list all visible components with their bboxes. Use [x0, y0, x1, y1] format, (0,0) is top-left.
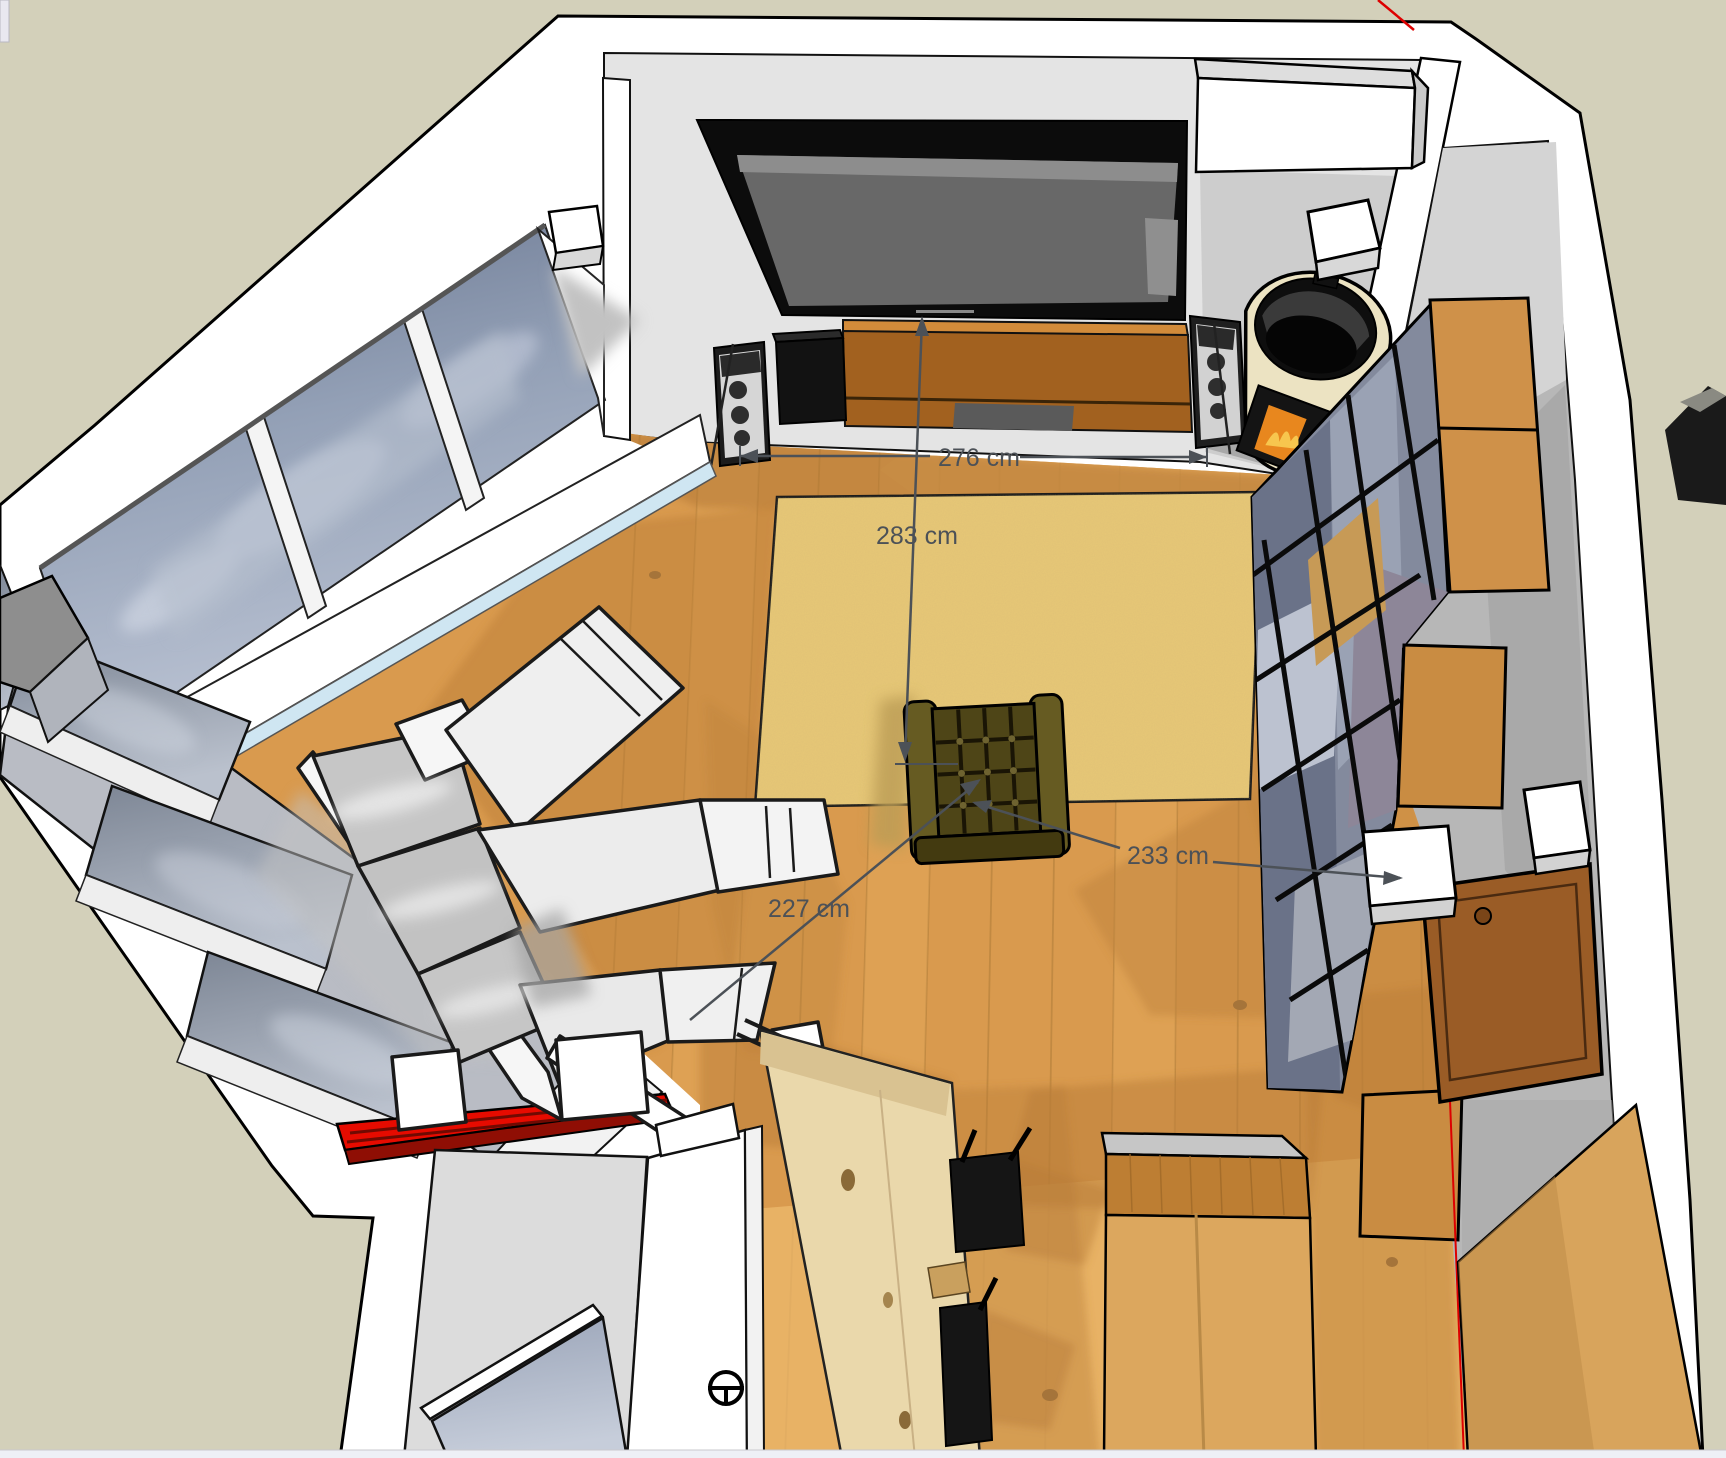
- svg-text:283 cm: 283 cm: [876, 522, 958, 550]
- svg-text:276 cm: 276 cm: [938, 444, 1020, 472]
- svg-text:227 cm: 227 cm: [768, 895, 850, 923]
- svg-text:233 cm: 233 cm: [1127, 842, 1209, 870]
